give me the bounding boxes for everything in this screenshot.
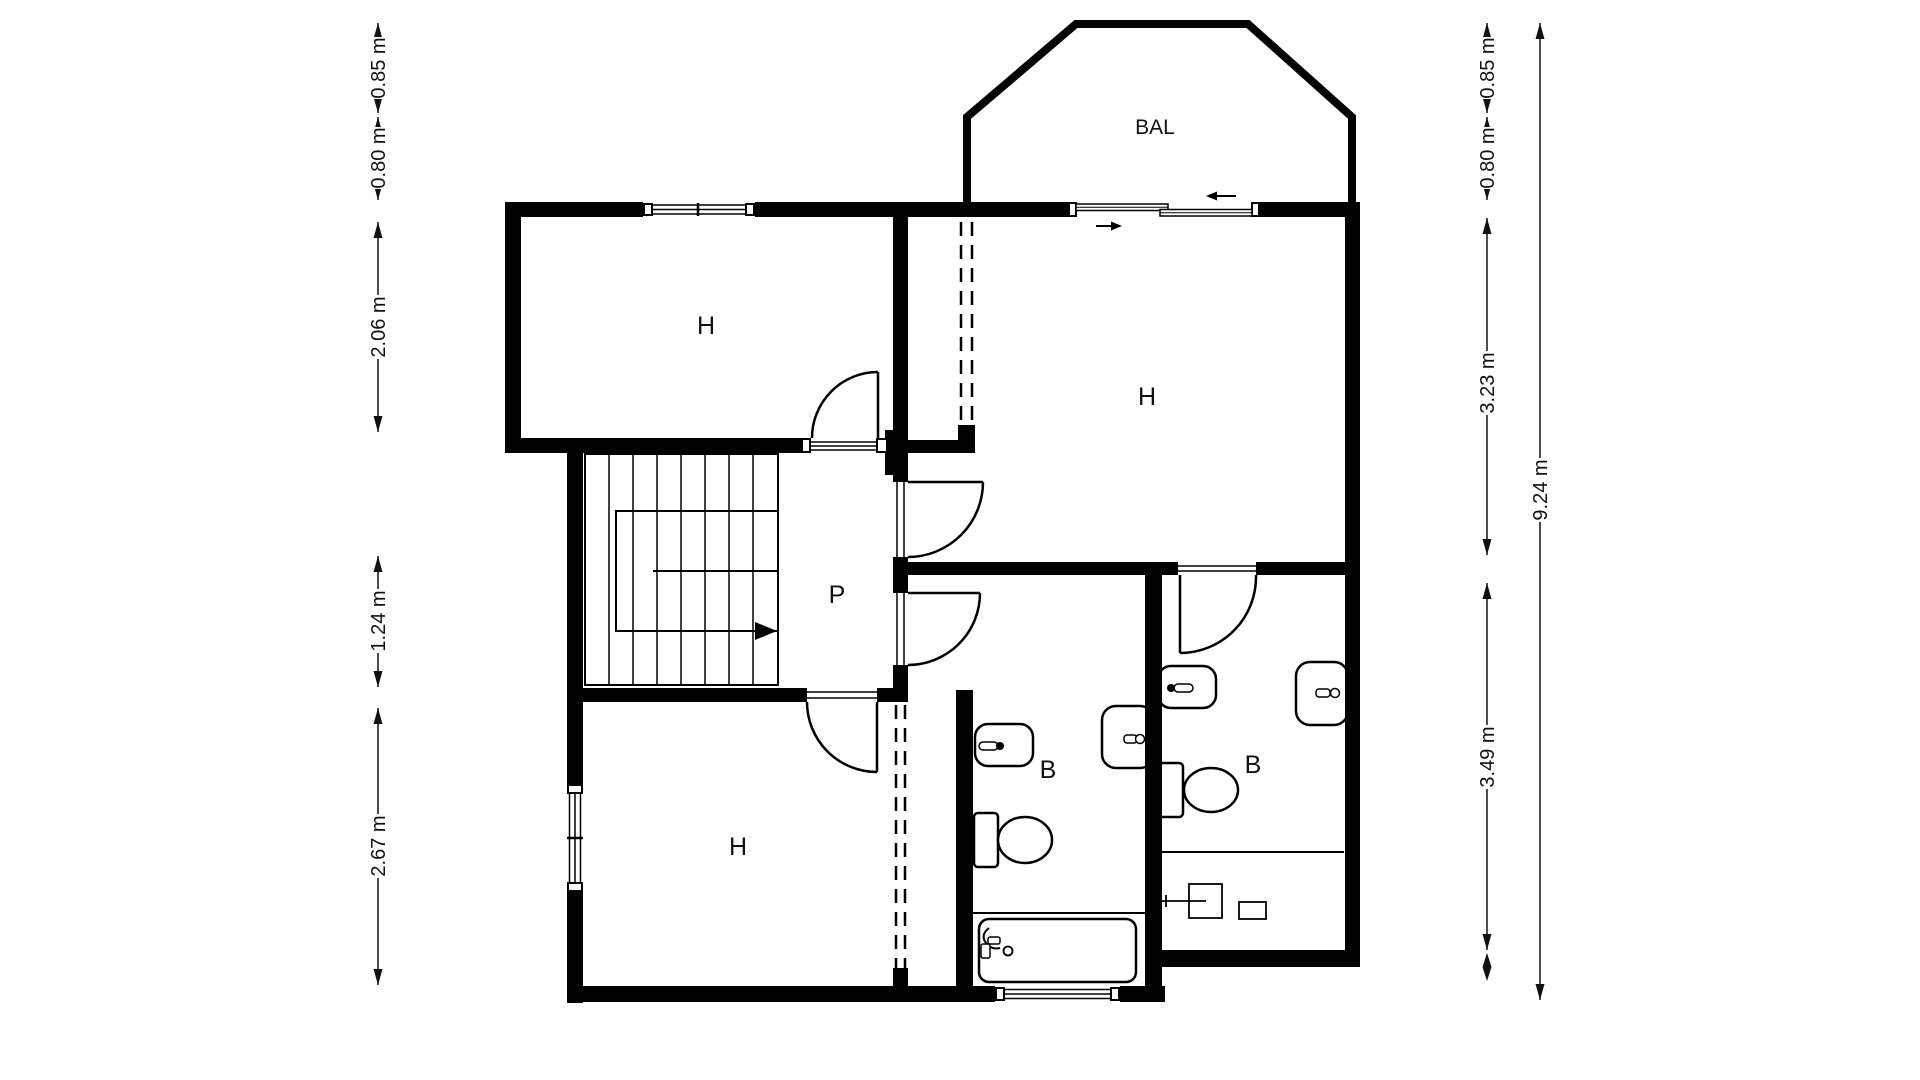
door-bedroom-upper-right [894, 482, 983, 557]
dim-right-1: 0.80 m [1476, 117, 1499, 200]
laundry-area [1162, 852, 1344, 919]
door-bedroom-upper-left [802, 372, 887, 452]
room-label-hallway: P [829, 581, 846, 609]
dimension-label: 0.80 m [1477, 127, 1499, 188]
slide-arrow-left-icon [1206, 192, 1236, 201]
bidet-icon [975, 724, 1033, 766]
door-bathroom-middle [894, 593, 980, 665]
stairs-direction-arrow [755, 622, 777, 640]
window-left [567, 784, 583, 892]
dim-right-wall-tick [1483, 953, 1492, 981]
room-label-bedroom-upper-right: H [1138, 383, 1156, 411]
bidet-icon [1158, 666, 1216, 708]
room-label-bathroom-right: B [1245, 751, 1262, 779]
open-passage-upper [961, 222, 972, 425]
window-bottom [995, 987, 1120, 1001]
sink-icon [1296, 662, 1348, 725]
room-label-bedroom-lower-left: H [729, 833, 747, 861]
door-bedroom-lower-left [807, 689, 877, 772]
dimension-label: 9.24 m [1530, 459, 1552, 520]
dimension-label: 3.23 m [1477, 352, 1499, 413]
window-top [643, 203, 755, 216]
dim-left-1: 0.80 m [367, 117, 390, 200]
sliding-door [1068, 192, 1260, 231]
dimension-label: 1.24 m [368, 590, 390, 651]
slide-arrow-right-icon [1096, 222, 1122, 231]
dimension-label: 0.80 m [368, 127, 390, 188]
dim-left-3: 1.24 m [367, 556, 390, 687]
dim-right-2: 3.23 m [1476, 218, 1499, 555]
bathtub-icon [973, 913, 1146, 982]
room-label-bathroom-middle: B [1040, 756, 1057, 784]
dim-right-0: 0.85 m [1476, 23, 1499, 113]
room-label-bedroom-upper-left: H [697, 312, 715, 340]
dimension-label: 2.67 m [368, 815, 390, 876]
dim-total: 9.24 m [1529, 23, 1552, 1000]
dim-left-2: 2.06 m [367, 222, 390, 432]
door-bathroom-right [1178, 563, 1256, 653]
dimension-label: 2.06 m [368, 296, 390, 357]
room-label-balcony: BAL [1135, 116, 1175, 139]
floor-plan-canvas: H H H P B B BAL 0.85 m 0.80 m 2.06 [0, 0, 1920, 1080]
dimension-label: 0.85 m [368, 37, 390, 98]
dim-left-0: 0.85 m [367, 23, 390, 113]
dimension-label: 3.49 m [1477, 726, 1499, 787]
toilet-icon [1159, 763, 1238, 817]
toilet-icon [974, 813, 1052, 867]
open-passage-lower [896, 705, 905, 968]
balcony-outline [967, 24, 1352, 206]
dim-left-4: 2.67 m [367, 708, 390, 985]
floor-plan-page: H H H P B B BAL 0.85 m 0.80 m 2.06 [0, 0, 1920, 1080]
dim-right-3: 3.49 m [1476, 583, 1499, 950]
stairs-icon [585, 454, 778, 685]
dimension-label: 0.85 m [1477, 37, 1499, 98]
